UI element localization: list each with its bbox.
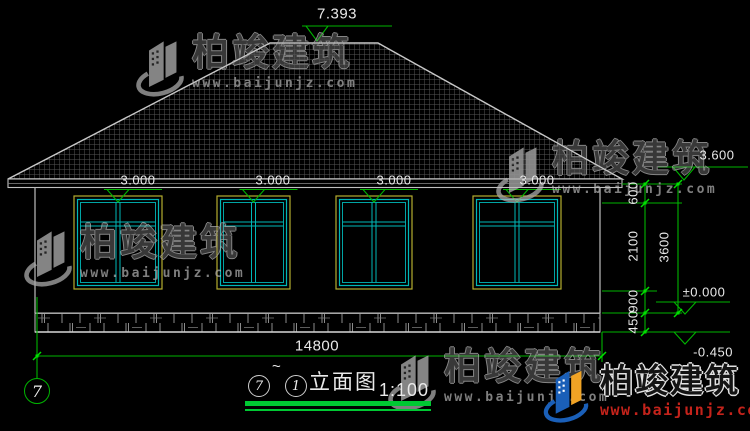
lintel-elevation-label: 3.000 <box>519 174 554 187</box>
ridge-elevation-label: 7.393 <box>317 7 357 22</box>
window-4 <box>473 196 561 289</box>
watermark-logo-icon <box>136 34 184 98</box>
title-axis-end-bubble: 1 <box>285 375 307 397</box>
dim-3600-label: 3600 <box>658 232 671 263</box>
elevation-drawing-canvas: 柏竣建筑 www.baijunjz.com 柏竣建筑 www.baijunjz.… <box>0 0 750 431</box>
floor-elevation-label: ±0.000 <box>683 286 726 299</box>
title-axis-start-bubble: 7 <box>248 375 270 397</box>
title-underline-thick <box>245 401 431 406</box>
plinth-band <box>35 313 600 332</box>
dim-2100-label: 2100 <box>627 231 640 262</box>
watermark-brand: 柏竣建筑 <box>552 140 717 179</box>
drawing-scale: 1:100 <box>379 381 429 399</box>
eave-elevation-label: 3.600 <box>699 149 734 162</box>
dim-450-label: 450 <box>627 310 640 333</box>
watermark-logo-icon <box>24 224 72 288</box>
brand-site: www.baijunjz.com <box>600 401 750 419</box>
title-underline-thin <box>245 409 431 411</box>
axis-number: 7 <box>32 382 42 401</box>
watermark-site: www.baijunjz.com <box>192 76 357 91</box>
drawing-title: 立面图 <box>309 372 378 393</box>
window-3 <box>336 196 412 289</box>
brand-name: 柏竣建筑 <box>600 364 750 399</box>
axis-bubble-7: 7 <box>24 378 50 404</box>
ground-elevation-label: -0.450 <box>693 346 733 359</box>
dim-900-label: 900 <box>627 289 640 312</box>
total-width-label: 14800 <box>295 339 339 354</box>
lintel-elevation-label: 3.000 <box>120 174 155 187</box>
watermark-brand: 柏竣建筑 <box>80 224 245 263</box>
watermark-mid-left: 柏竣建筑 www.baijunjz.com <box>24 224 245 288</box>
brand-logo-icon <box>538 364 594 424</box>
watermark-site: www.baijunjz.com <box>80 266 245 281</box>
lintel-elevation-label: 3.000 <box>255 174 290 187</box>
watermark-top-left: 柏竣建筑 www.baijunjz.com <box>136 34 357 98</box>
title-separator: ~ <box>272 359 281 374</box>
dim-600-label: 600 <box>627 181 640 204</box>
watermark-brand: 柏竣建筑 <box>192 34 357 73</box>
brand-footer: 柏竣建筑 www.baijunjz.com <box>538 364 750 424</box>
title-axis-start: 7 <box>255 379 263 394</box>
lintel-elevation-label: 3.000 <box>376 174 411 187</box>
title-axis-end: 1 <box>292 379 300 394</box>
